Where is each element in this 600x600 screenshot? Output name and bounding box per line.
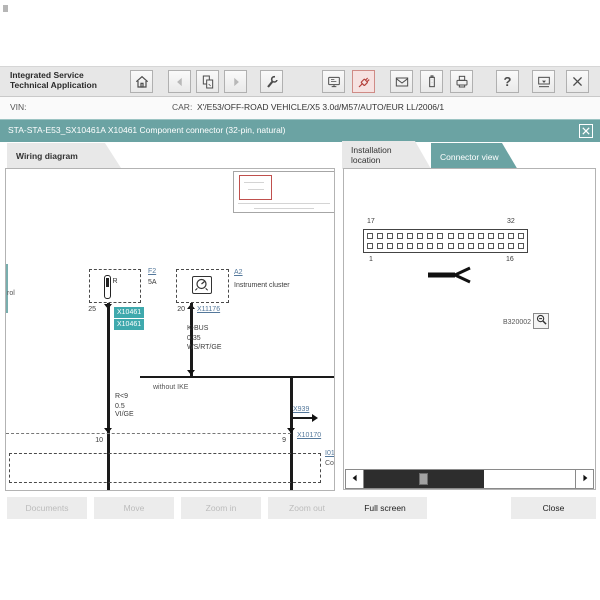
triangle-left-icon [351, 474, 359, 484]
connector-pin [427, 243, 433, 249]
bus-cross-section: 0.35 [187, 335, 201, 343]
full-screen-button-label: Full screen [364, 503, 406, 513]
app-title: Integrated Service Technical Application [10, 70, 97, 90]
clipped-teal-wire [6, 264, 8, 313]
control-unit-icon [326, 74, 342, 90]
documents-footer-button[interactable]: Documents [7, 497, 87, 519]
arrowhead-right [312, 414, 318, 422]
clipped-word-left: rol [7, 290, 15, 298]
bus-name: K-BUS [187, 325, 208, 333]
clipped-ref-link[interactable]: I01 [325, 450, 335, 458]
connector-pin [498, 233, 504, 239]
junction-line [140, 376, 335, 378]
connector-pin [478, 243, 484, 249]
connector-x11176-link[interactable]: X11176 [197, 306, 220, 314]
zoom-out-button-label: Zoom out [289, 503, 325, 513]
horizontal-scrollbar [345, 469, 594, 489]
car-value: X'/E53/OFF-ROAD VEHICLE/X5 3.0d/M57/AUTO… [197, 102, 444, 112]
battery-icon [424, 74, 440, 90]
minimap-line [238, 203, 330, 204]
connector-pin [387, 233, 393, 239]
arrowhead-down [104, 428, 112, 433]
connector-pin [397, 233, 403, 239]
connector-pin [397, 243, 403, 249]
minimap-viewport[interactable] [239, 175, 272, 200]
connector-pin [498, 243, 504, 249]
zoom-in-button[interactable]: Zoom in [181, 497, 261, 519]
vehicle-bar: VIN: CAR: X'/E53/OFF-ROAD VEHICLE/X5 3.0… [0, 97, 600, 119]
x10170-link[interactable]: X10170 [297, 432, 321, 440]
close-x-icon [570, 74, 585, 89]
documents-button-label: Documents [26, 503, 69, 513]
connector-pin-grid [363, 229, 528, 253]
triangle-right-icon [581, 474, 589, 484]
connector-pin [488, 233, 494, 239]
connector-pin [448, 243, 454, 249]
pin-9: 9 [258, 437, 286, 445]
scrollbar-grip[interactable] [419, 473, 428, 485]
pin-17-label: 17 [367, 218, 375, 226]
connector-pin [458, 243, 464, 249]
fuse-rating: 5A [148, 279, 157, 287]
envelope-icon [394, 74, 410, 90]
back-button[interactable] [168, 70, 191, 93]
forward-button[interactable] [224, 70, 247, 93]
move-button-label: Move [124, 503, 145, 513]
connector-button[interactable] [352, 70, 375, 93]
connector-tag-x10461-bottom[interactable]: X10461 [114, 319, 144, 330]
zoom-in-button-label: Zoom in [206, 503, 237, 513]
note-without-ike: without IKE [153, 384, 188, 392]
document-title: STA-STA-E53_SX10461A X10461 Component co… [8, 125, 286, 135]
tools-button[interactable] [260, 70, 283, 93]
move-button[interactable]: Move [94, 497, 174, 519]
cluster-name: Instrument cluster [234, 282, 290, 290]
document-close-button[interactable] [579, 124, 593, 138]
vin-label: VIN: [10, 102, 27, 112]
connector-pin [448, 233, 454, 239]
bus-color: WS/RT/GE [187, 344, 221, 352]
app-title-line2: Technical Application [10, 80, 97, 90]
documents-button[interactable] [196, 70, 219, 93]
figure-code: B320002 [503, 319, 531, 327]
fuse-symbol [104, 275, 111, 299]
connector-pin [458, 233, 464, 239]
connector-plug-icon [356, 74, 372, 90]
cable-direction-icon [428, 266, 474, 289]
wrench-icon [264, 74, 280, 90]
fuse-ref-link[interactable]: F2 [148, 268, 156, 276]
connector-pin [508, 233, 514, 239]
x939-arrow-line [292, 417, 313, 419]
cluster-ref-link[interactable]: A2 [234, 269, 243, 277]
tab-installation-location[interactable]: Installation location [342, 141, 431, 169]
main-toolbar: Integrated Service Technical Application [0, 66, 600, 97]
scrollbar-thumb[interactable] [364, 470, 484, 488]
left-wire-name: R<9 [115, 393, 128, 401]
tab-installation-label: Installation location [351, 145, 413, 165]
question-mark-icon: ? [504, 75, 512, 88]
pin-1-label: 1 [369, 256, 373, 264]
close-icon [582, 122, 590, 140]
connector-boundary-line [6, 433, 291, 434]
connector-pin [468, 233, 474, 239]
scroll-right-button[interactable] [575, 470, 593, 488]
diagram-minimap[interactable] [233, 171, 335, 213]
connector-pin [367, 233, 373, 239]
pin-25: 25 [74, 306, 96, 314]
connector-pin [387, 243, 393, 249]
connector-pin [377, 233, 383, 239]
control-unit-button[interactable] [322, 70, 345, 93]
bottom-component-box [9, 453, 321, 483]
battery-button[interactable] [420, 70, 443, 93]
connector-view-panel: 17 32 1 16 B320002 [343, 168, 596, 490]
help-button[interactable]: ? [496, 70, 519, 93]
connector-pin [488, 243, 494, 249]
arrowhead-down [187, 370, 195, 375]
close-app-button[interactable] [566, 70, 589, 93]
tab-wiring-diagram-label: Wiring diagram [16, 151, 78, 161]
minimize-button[interactable] [532, 70, 555, 93]
pin-20: 20 [166, 306, 185, 314]
document-title-bar: STA-STA-E53_SX10461A X10461 Component co… [0, 119, 600, 142]
wiring-diagram-panel: rol R F2 5A 25 X10461 X10461 A2 Instrume… [5, 168, 335, 491]
connector-pin [437, 243, 443, 249]
connector-pin [407, 243, 413, 249]
print-button[interactable] [450, 70, 473, 93]
connector-pin [417, 233, 423, 239]
scroll-left-button[interactable] [346, 470, 364, 488]
tab-connector-view-label: Connector view [440, 152, 499, 162]
back-arrow-icon [173, 75, 187, 89]
documents-icon [200, 74, 216, 90]
forward-arrow-icon [229, 75, 243, 89]
magnify-button[interactable] [533, 313, 549, 329]
car-label: CAR: [172, 102, 192, 112]
home-icon [134, 74, 150, 90]
fuse-terminal-label: R [112, 278, 117, 285]
instrument-cluster-icon [192, 276, 212, 294]
connector-pin [437, 233, 443, 239]
connector-pin [518, 243, 524, 249]
left-wire-cross-section: 0.5 [115, 403, 125, 411]
connector-pin [417, 243, 423, 249]
clipped-word-right: Co [325, 460, 334, 468]
ista-window: Integrated Service Technical Application [0, 0, 600, 600]
app-title-line1: Integrated Service [10, 70, 97, 80]
screen-down-icon [536, 74, 552, 90]
connector-pin [367, 243, 373, 249]
printer-icon [454, 74, 470, 90]
tab-wiring-diagram[interactable]: Wiring diagram [7, 143, 121, 168]
connector-pin [468, 243, 474, 249]
connector-pin [518, 233, 524, 239]
home-button[interactable] [130, 70, 153, 93]
fuse-box: R [89, 269, 141, 303]
mail-button[interactable] [390, 70, 413, 93]
minimap-line [254, 208, 314, 209]
zoom-out-button[interactable]: Zoom out [268, 497, 346, 519]
connector-tag-x10461-top[interactable]: X10461 [114, 307, 144, 318]
pin-10: 10 [79, 437, 103, 445]
left-wire-color: VI/GE [115, 411, 134, 419]
tab-connector-view[interactable]: Connector view [431, 143, 518, 170]
arrowhead-down [287, 428, 295, 433]
connector-pin [478, 233, 484, 239]
pin-16-label: 16 [506, 256, 514, 264]
magnifier-icon [536, 312, 547, 330]
connector-pin [427, 233, 433, 239]
pin-32-label: 32 [507, 218, 515, 226]
connector-pin [407, 233, 413, 239]
scan-artifact [3, 5, 8, 12]
connector-pin [508, 243, 514, 249]
close-button[interactable]: Close [511, 497, 596, 519]
full-screen-button[interactable]: Full screen [343, 497, 427, 519]
close-button-label: Close [543, 503, 565, 513]
x939-link[interactable]: X939 [293, 406, 309, 414]
connector-pin [377, 243, 383, 249]
